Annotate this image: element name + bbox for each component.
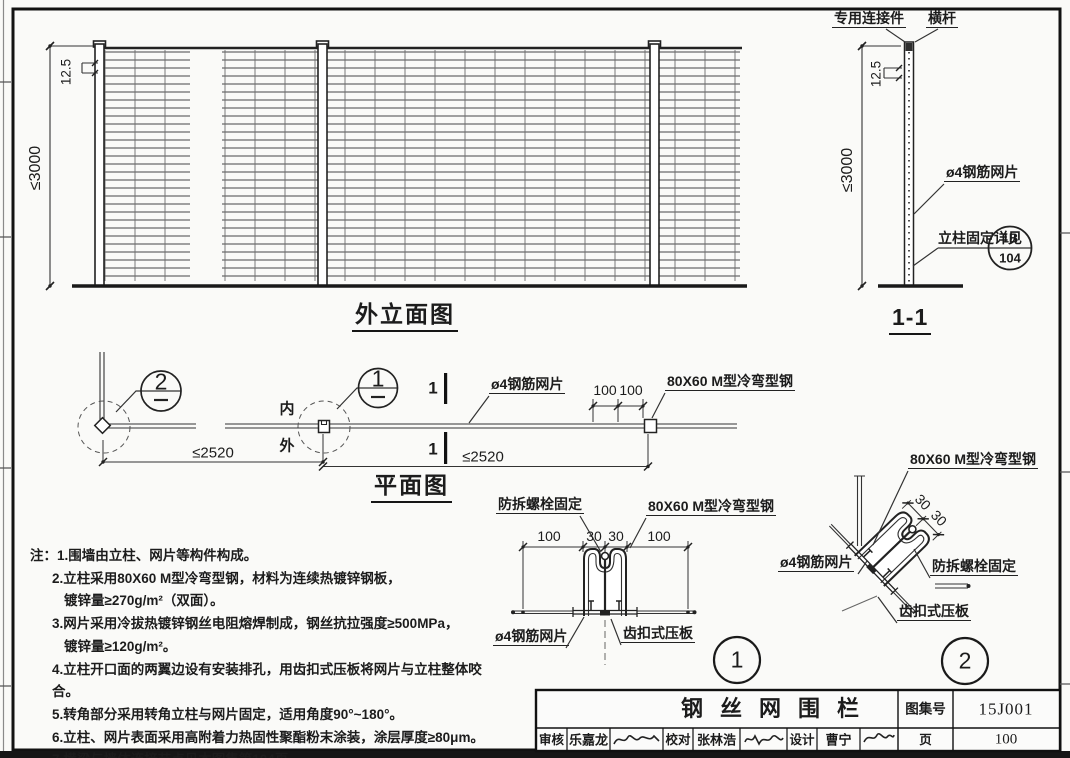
plan-dim-100-b: 100 — [619, 383, 642, 397]
section-pitch-dim: 12.5 — [869, 61, 883, 87]
section-height-dim: ≤3000 — [840, 148, 856, 192]
plan-section-mark-top: 1 — [428, 380, 437, 397]
detail-ref-page: 104 — [999, 252, 1021, 265]
detail1-dim-100-right: 100 — [647, 529, 670, 543]
note-line: 7.横梁与墙体连接节点见本图集第104页。 — [30, 749, 508, 758]
plan-span-dim-b: ≤2520 — [462, 450, 504, 465]
checker-name: 张林浩 — [697, 733, 736, 746]
section-connector-label: 专用连接件 — [832, 11, 906, 28]
designer-signature — [861, 729, 897, 749]
sheet-title: 钢丝网围栏 — [664, 698, 876, 720]
detail1-dim-100-left: 100 — [537, 529, 560, 543]
section-title: 1-1 — [889, 306, 931, 335]
note-line: 镀锌量≥270g/m²（双面）。 — [30, 590, 508, 613]
note-line: 4.立柱开口面的两翼边设有安装排孔，用齿扣式压板将网片与立柱整体咬合。 — [30, 659, 508, 704]
detail1-dim-30-right: 30 — [608, 529, 624, 543]
detail1-post-label: 80X60 M型冷弯型钢 — [646, 499, 776, 516]
detail1-clamp-label: 齿扣式压板 — [621, 626, 695, 643]
plan-outer-label: 外 — [279, 439, 294, 454]
elevation-height-dim: ≤3000 — [28, 146, 44, 190]
general-notes: 注：1.围墙由立柱、网片等构件构成。 2.立柱采用80X60 M型冷弯型钢，材料… — [30, 545, 508, 758]
atlas-drawing-page: ≤3000 12.5 外立面图 专用连接件 横杆 ≤3000 12.5 ø4钢筋… — [0, 0, 1070, 758]
plan-dim-100-a: 100 — [593, 383, 616, 397]
note-line: 注：1.围墙由立柱、网片等构件构成。 — [30, 545, 508, 568]
detail2-bubble: 2 — [959, 650, 972, 673]
elevation-linework — [46, 41, 747, 290]
note-line: 镀锌量≥120g/m²。 — [30, 636, 508, 659]
note-line: 5.转角部分采用转角立柱与网片固定，适用角度90°~180°。 — [30, 704, 508, 727]
detail1-dim-30-left: 30 — [586, 529, 602, 543]
page-label: 页 — [919, 733, 932, 746]
plan-span-dim-a: ≤2520 — [192, 446, 234, 461]
elevation-pitch-dim: 12.5 — [59, 59, 73, 85]
section-mesh-label: ø4钢筋网片 — [944, 165, 1020, 182]
designer-name: 曹宁 — [825, 733, 851, 746]
detail2-bolt-label: 防拆螺栓固定 — [930, 559, 1018, 576]
check-label: 校对 — [665, 733, 690, 746]
plan-post-label: 80X60 M型冷弯型钢 — [665, 374, 795, 391]
detail2-clamp-label: 齿扣式压板 — [897, 604, 971, 621]
plan-detail-bubble-1: 1 — [372, 368, 385, 391]
reviewer-name: 乐嘉龙 — [569, 733, 608, 746]
detail1-mesh-label: ø4钢筋网片 — [493, 629, 569, 646]
plan-inner-label: 内 — [279, 402, 294, 417]
plan-section-mark-bottom: 1 — [428, 441, 437, 458]
note-line: 6.立柱、网片表面采用高附着力热固性聚酯粉末涂装，涂层厚度≥80μm。 — [30, 727, 508, 750]
plan-linework — [78, 352, 737, 471]
detail1-bubble: 1 — [731, 649, 744, 672]
atlas-number-value: 15J001 — [978, 701, 1033, 718]
elevation-title: 外立面图 — [352, 303, 458, 332]
detail2-mesh-label: ø4钢筋网片 — [778, 555, 854, 572]
plan-title: 平面图 — [371, 474, 452, 503]
note-line: 3.网片采用冷拔热镀锌钢丝电阻熔焊制成，钢丝抗拉强度≥500MPa， — [30, 613, 508, 636]
page-number: 100 — [995, 732, 1018, 747]
reviewer-signature — [610, 730, 662, 749]
detail2-post-label: 80X60 M型冷弯型钢 — [908, 452, 1038, 469]
design-label: 设计 — [789, 733, 814, 746]
checker-signature — [741, 730, 786, 749]
atlas-number-label: 图集号 — [905, 702, 946, 716]
review-label: 审核 — [539, 733, 564, 746]
plan-mesh-label: ø4钢筋网片 — [489, 377, 565, 394]
note-line: 2.立柱采用80X60 M型冷弯型钢，材料为连续热镀锌钢板， — [30, 568, 508, 591]
detail-ref-number: 1B — [1002, 232, 1019, 245]
plan-detail-bubble-2: 2 — [155, 371, 168, 394]
detail1-bolt-label: 防拆螺栓固定 — [496, 497, 584, 514]
section-rail-label: 横杆 — [926, 11, 958, 28]
